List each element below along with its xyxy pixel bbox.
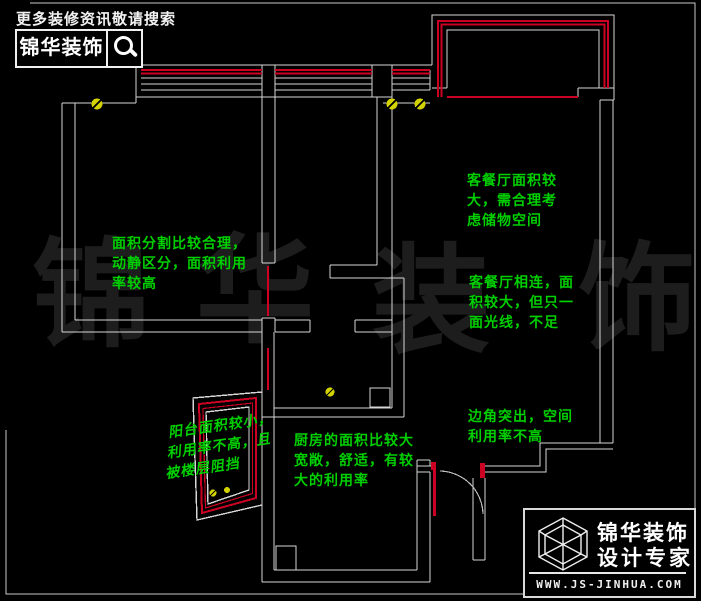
entry-door-arc [440, 471, 483, 514]
note-corner-usage: 边角突出，空间 利用率不高 [468, 406, 573, 446]
header-brand-name: 锦华装饰 [17, 31, 106, 66]
drawing-border [6, 3, 695, 594]
footer-rule [529, 572, 686, 574]
header-brand-box: 锦华装饰 [15, 29, 143, 68]
header-tagline: 更多装修资讯敬请搜索 [16, 8, 176, 29]
cube-logo-icon [534, 516, 592, 572]
footer-logo-box: 锦华装饰 设计专家 WWW.JS-JINHUA.COM [523, 508, 696, 598]
footer-website-url: WWW.JS-JINHUA.COM [525, 578, 694, 591]
floorplan-screenshot: 锦 华 装 饰 [0, 0, 701, 601]
search-icon [108, 31, 141, 66]
note-bedroom-area: 面积分割比较合理， 动静区分，面积利用 率较高 [112, 233, 247, 293]
note-kitchen-area: 厨房的面积比较大 宽敞，舒适，有较 大的利用率 [294, 430, 414, 490]
magnifier-handle [129, 48, 138, 57]
footer-brand-slogan: 设计专家 [597, 542, 693, 572]
note-living-light: 客餐厅相连，面 积较大，但只一 面光线，不足 [469, 272, 574, 332]
note-storage-space: 客餐厅面积较 大，需合理考 虑储物空间 [467, 170, 557, 230]
